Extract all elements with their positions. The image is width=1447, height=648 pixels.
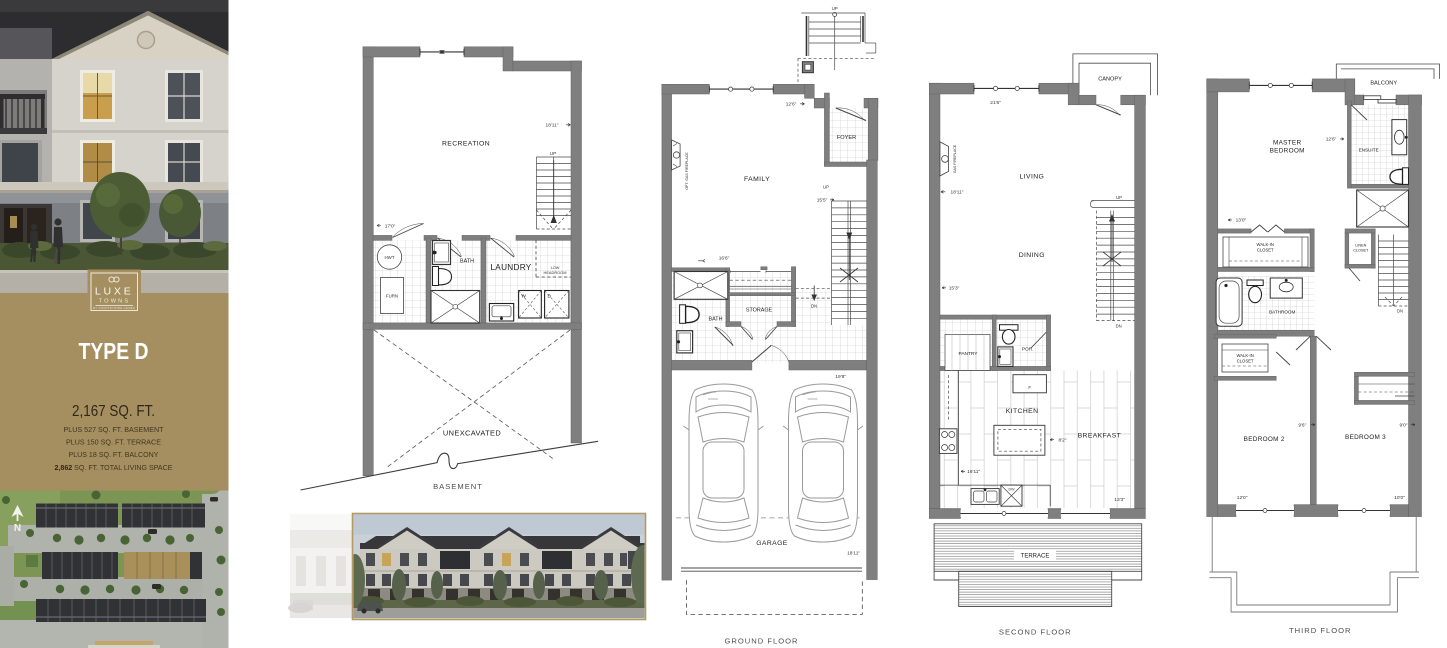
svg-text:BREAKFAST: BREAKFAST bbox=[1078, 433, 1122, 440]
svg-text:W: W bbox=[522, 294, 527, 299]
svg-text:CLOSET: CLOSET bbox=[1257, 248, 1274, 253]
svg-text:15'5": 15'5" bbox=[817, 198, 828, 204]
svg-text:2,862 SQ. FT. TOTAL LIVING SPA: 2,862 SQ. FT. TOTAL LIVING SPACE bbox=[55, 463, 173, 472]
svg-text:13'3": 13'3" bbox=[1114, 497, 1125, 503]
svg-text:12'0": 12'0" bbox=[1237, 495, 1248, 501]
svg-text:BATHROOM: BATHROOM bbox=[1269, 310, 1295, 315]
svg-text:SECOND FLOOR: SECOND FLOOR bbox=[999, 628, 1072, 637]
svg-text:LINEN: LINEN bbox=[1355, 244, 1366, 248]
svg-text:BEDROOM 3: BEDROOM 3 bbox=[1345, 434, 1386, 441]
svg-text:BEDROOM: BEDROOM bbox=[1270, 148, 1305, 155]
svg-text:13'0": 13'0" bbox=[1236, 218, 1247, 224]
svg-text:LAUNDRY: LAUNDRY bbox=[490, 263, 531, 272]
svg-text:18'11": 18'11" bbox=[546, 123, 559, 129]
svg-text:WALK-IN: WALK-IN bbox=[1257, 242, 1274, 247]
svg-text:DN: DN bbox=[811, 304, 817, 309]
svg-text:9'6": 9'6" bbox=[1298, 422, 1306, 428]
svg-text:BATH: BATH bbox=[460, 259, 474, 265]
svg-text:HEADROOM: HEADROOM bbox=[544, 270, 567, 275]
svg-text:12'6": 12'6" bbox=[786, 102, 797, 108]
svg-text:KITCHEN: KITCHEN bbox=[1006, 408, 1039, 415]
svg-text:FAMILY: FAMILY bbox=[744, 176, 770, 183]
svg-text:TOWNS: TOWNS bbox=[99, 299, 131, 305]
svg-text:TERRACE: TERRACE bbox=[1021, 553, 1050, 559]
svg-text:BY COUNTRYWIDE HOMES: BY COUNTRYWIDE HOMES bbox=[93, 306, 135, 310]
svg-text:PLUS 150 SQ. FT. TERRACE: PLUS 150 SQ. FT. TERRACE bbox=[66, 438, 161, 447]
svg-text:FURN: FURN bbox=[386, 294, 398, 299]
svg-text:F: F bbox=[1028, 385, 1031, 390]
svg-text:ENSUITE: ENSUITE bbox=[1359, 148, 1379, 153]
svg-text:TYPE D: TYPE D bbox=[79, 338, 149, 364]
svg-text:WALK-IN: WALK-IN bbox=[1236, 353, 1253, 358]
svg-text:9'0": 9'0" bbox=[1400, 422, 1408, 428]
svg-text:BEDROOM 2: BEDROOM 2 bbox=[1244, 436, 1285, 443]
svg-text:21'6": 21'6" bbox=[990, 100, 1001, 106]
svg-text:RECREATION: RECREATION bbox=[442, 141, 490, 148]
svg-text:18'11": 18'11" bbox=[847, 551, 860, 557]
svg-text:12'6": 12'6" bbox=[1326, 137, 1337, 143]
svg-text:CANOPY: CANOPY bbox=[1098, 77, 1122, 83]
svg-text:DN: DN bbox=[1116, 324, 1122, 329]
svg-text:PLUS 527 SQ. FT. BASEMENT: PLUS 527 SQ. FT. BASEMENT bbox=[64, 425, 165, 434]
svg-text:19'8": 19'8" bbox=[835, 374, 846, 380]
svg-text:15'3": 15'3" bbox=[949, 286, 960, 292]
svg-text:10'0": 10'0" bbox=[1394, 495, 1405, 501]
svg-text:UNEXCAVATED: UNEXCAVATED bbox=[443, 429, 501, 438]
svg-text:16'11": 16'11" bbox=[967, 469, 980, 475]
svg-text:UP: UP bbox=[1116, 195, 1122, 200]
svg-text:HWT: HWT bbox=[385, 255, 395, 260]
svg-text:GARAGE: GARAGE bbox=[756, 540, 788, 547]
svg-text:N: N bbox=[14, 523, 21, 534]
svg-text:2,167 SQ. FT.: 2,167 SQ. FT. bbox=[72, 403, 155, 420]
svg-text:OPT. GAS FIREPLACE: OPT. GAS FIREPLACE bbox=[685, 152, 689, 190]
svg-text:GROUND FLOOR: GROUND FLOOR bbox=[724, 637, 798, 646]
svg-text:8'2": 8'2" bbox=[1059, 437, 1067, 443]
svg-text:CLOSET: CLOSET bbox=[1353, 249, 1369, 253]
svg-text:UP: UP bbox=[823, 185, 829, 190]
svg-text:17'0": 17'0" bbox=[385, 224, 396, 230]
svg-text:PANTRY: PANTRY bbox=[958, 351, 978, 357]
svg-text:BATH: BATH bbox=[709, 317, 723, 323]
svg-text:GAS FIREPLACE: GAS FIREPLACE bbox=[953, 144, 957, 173]
svg-text:18'11": 18'11" bbox=[951, 190, 964, 196]
svg-text:LUXE: LUXE bbox=[95, 286, 134, 298]
svg-text:DN: DN bbox=[1397, 309, 1403, 314]
svg-text:DINING: DINING bbox=[1019, 252, 1045, 259]
svg-text:PLUS 18 SQ. FT. BALCONY: PLUS 18 SQ. FT. BALCONY bbox=[69, 450, 159, 459]
svg-text:STORAGE: STORAGE bbox=[746, 308, 773, 314]
svg-text:BALCONY: BALCONY bbox=[1370, 80, 1397, 86]
svg-text:BASEMENT: BASEMENT bbox=[433, 482, 483, 491]
svg-text:UP: UP bbox=[550, 151, 556, 156]
svg-text:LIVING: LIVING bbox=[1020, 174, 1045, 181]
svg-text:FOYER: FOYER bbox=[837, 135, 856, 141]
svg-text:CLOSET: CLOSET bbox=[1237, 359, 1254, 364]
svg-text:UP: UP bbox=[832, 6, 838, 11]
svg-text:DW: DW bbox=[1009, 488, 1016, 492]
svg-text:THIRD FLOOR: THIRD FLOOR bbox=[1289, 626, 1351, 635]
svg-text:MASTER: MASTER bbox=[1273, 140, 1302, 147]
svg-text:16'6": 16'6" bbox=[719, 256, 730, 262]
